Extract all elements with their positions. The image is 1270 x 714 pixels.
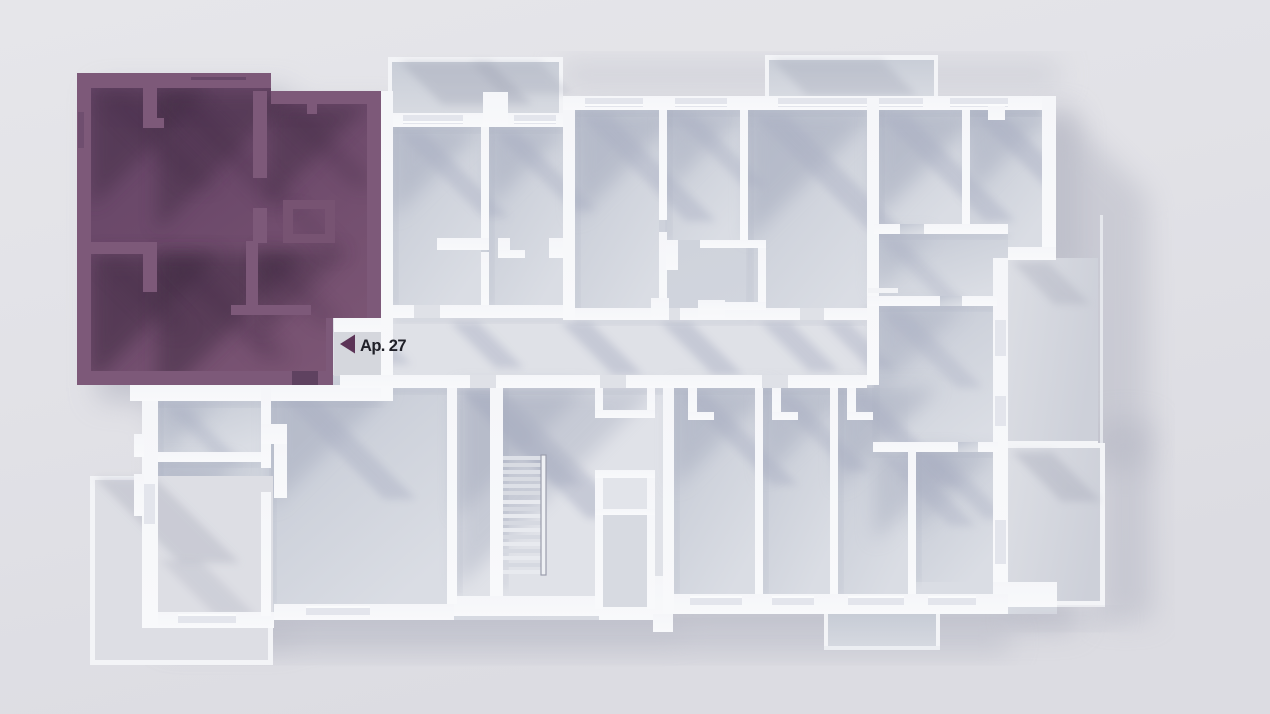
svg-text:Ap. 27: Ap. 27 [360, 337, 406, 355]
